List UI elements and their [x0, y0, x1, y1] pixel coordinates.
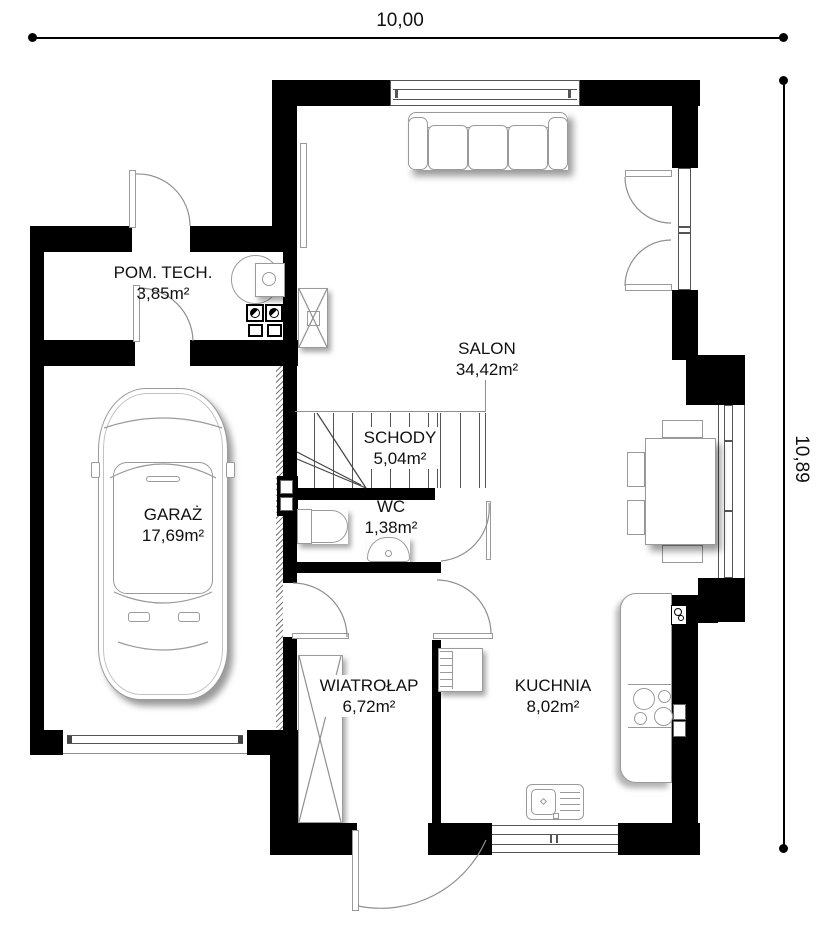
room-label-garaz: GARAŻ 17,69m²	[140, 504, 206, 546]
door-swing-arc	[441, 503, 489, 561]
door-leaf	[625, 170, 672, 177]
room-label-salon: SALON 34,42m²	[456, 338, 518, 380]
door-leaf	[486, 501, 491, 560]
room-area: 3,85m²	[114, 283, 213, 304]
dimension-dot	[779, 844, 788, 853]
stair-landing-edge	[440, 413, 441, 488]
insulation-hatch	[276, 348, 283, 755]
door-swing-arc	[625, 177, 671, 223]
room-name: KUCHNIA	[515, 675, 592, 696]
room-label-kuchnia: KUCHNIA 8,02m²	[515, 675, 592, 717]
chair-icon	[662, 545, 703, 563]
door-swing-arc	[293, 583, 347, 637]
stair-tread	[352, 413, 353, 488]
room-label-pom-tech: POM. TECH. 3,85m²	[114, 262, 213, 304]
stair-tread	[479, 413, 480, 488]
wall-segment	[672, 290, 698, 360]
wall-segment	[30, 226, 132, 252]
window-icon	[492, 825, 618, 853]
door-leaf	[433, 633, 493, 639]
wall-segment	[190, 226, 297, 252]
wall-segment	[672, 106, 698, 168]
room-area: 17,69m²	[142, 525, 204, 546]
water-heater-icon	[231, 255, 287, 307]
right-dimension-line	[783, 80, 785, 848]
vent-shaft-icon	[280, 480, 293, 494]
kitchen-sink-icon	[526, 784, 584, 820]
stair-tread	[314, 413, 315, 488]
room-area: 1,38m²	[365, 517, 418, 538]
fireplace-icon	[298, 288, 328, 348]
door-leaf	[129, 170, 136, 228]
vent-shaft-icon	[673, 721, 686, 737]
floor-plan: 10,00 10,89	[0, 0, 825, 927]
window-icon	[390, 80, 580, 106]
wall-segment	[686, 355, 745, 405]
vent-shaft-icon	[280, 497, 293, 511]
room-name: GARAŻ	[142, 504, 204, 525]
wall-segment	[283, 348, 297, 480]
appliance-icon	[248, 324, 263, 337]
room-label-wiatrolap: WIATROŁAP 6,72m²	[318, 675, 421, 717]
washbasin-icon	[367, 537, 410, 562]
room-name: SCHODY	[364, 427, 437, 448]
french-door-sill	[672, 168, 698, 290]
wall-segment	[272, 106, 297, 226]
room-area: 34,42m²	[456, 359, 518, 380]
toilet-icon	[297, 509, 348, 544]
garage-door-icon	[63, 730, 247, 755]
dimension-dot	[28, 33, 37, 42]
stair-tread	[333, 413, 334, 488]
washer-icon	[265, 304, 283, 322]
sofa-icon	[408, 112, 568, 170]
door-swing-arc	[437, 580, 491, 634]
chair-icon	[627, 452, 645, 487]
wall-segment	[428, 823, 492, 855]
wall-segment	[283, 573, 297, 583]
dining-table-icon	[645, 438, 716, 545]
room-area: 5,04m²	[364, 448, 437, 469]
height-dimension-label: 10,89	[790, 435, 812, 483]
room-name: WC	[365, 496, 418, 517]
chair-icon	[627, 500, 645, 535]
width-dimension-label: 10,00	[376, 10, 424, 32]
washer-icon	[246, 304, 264, 322]
room-area: 6,72m²	[320, 696, 419, 717]
door-swing-arc	[136, 174, 190, 226]
appliance-icon	[267, 324, 282, 337]
room-name: SALON	[456, 338, 518, 359]
room-name: POM. TECH.	[114, 262, 213, 283]
wall-segment	[247, 730, 298, 755]
stairs-break-line	[297, 413, 366, 488]
wall-segment	[283, 562, 441, 573]
room-area: 8,02m²	[515, 696, 592, 717]
stair-tread	[485, 413, 486, 488]
dimension-dot	[779, 33, 788, 42]
wall-segment	[270, 755, 298, 855]
wall-segment	[30, 340, 135, 366]
room-name: WIATROŁAP	[320, 675, 419, 696]
top-dimension-line	[32, 37, 784, 39]
wall-segment	[30, 226, 44, 755]
door-leaf	[625, 284, 672, 291]
vent-icon	[671, 605, 687, 625]
wall-segment	[190, 340, 298, 366]
vent-shaft-icon	[673, 704, 686, 720]
window-icon	[718, 405, 745, 578]
fridge-icon	[438, 648, 483, 692]
room-label-schody: SCHODY 5,04m²	[362, 427, 439, 469]
stair-tread	[460, 413, 461, 488]
dimension-dot	[779, 76, 788, 85]
wall-segment	[30, 730, 63, 755]
chair-icon	[662, 420, 703, 438]
wall-segment	[618, 823, 700, 855]
door-swing-arc	[625, 240, 671, 286]
door-leaf	[352, 830, 359, 911]
door-leaf	[292, 633, 349, 639]
cooktop-icon	[628, 684, 672, 728]
window-frame	[393, 89, 577, 100]
radiator-icon	[300, 143, 307, 248]
room-label-wc: WC 1,38m²	[365, 496, 418, 538]
